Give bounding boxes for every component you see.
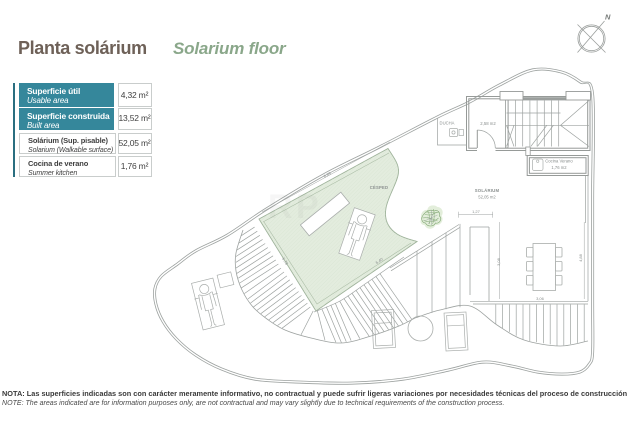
- svg-text:1,27: 1,27: [472, 209, 481, 214]
- svg-text:4,88: 4,88: [578, 253, 583, 262]
- svg-text:52,05 m2: 52,05 m2: [478, 195, 496, 200]
- svg-text:6,85: 6,85: [323, 170, 333, 178]
- svg-text:R: R: [268, 188, 293, 226]
- svg-text:1,76 m2: 1,76 m2: [551, 165, 567, 170]
- svg-text:SOLÁRIUM: SOLÁRIUM: [475, 188, 500, 193]
- svg-text:CÉSPED: CÉSPED: [370, 185, 388, 190]
- svg-text:Cocina Verano: Cocina Verano: [545, 159, 573, 164]
- svg-text:P: P: [296, 188, 319, 226]
- svg-text:3,08: 3,08: [496, 257, 501, 266]
- svg-text:3,06: 3,06: [536, 296, 545, 301]
- svg-text:N: N: [605, 13, 611, 22]
- svg-text:2,58 m2: 2,58 m2: [480, 121, 496, 126]
- svg-text:DUCHA: DUCHA: [440, 121, 455, 126]
